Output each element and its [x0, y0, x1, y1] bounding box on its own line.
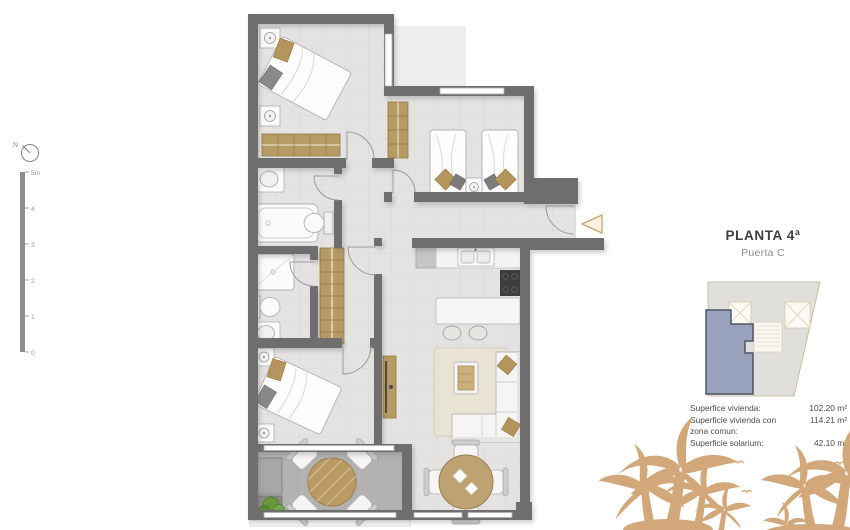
surface-areas: Superfice vivienda: 102.20 m² Superficie… — [690, 403, 847, 448]
fridge — [416, 246, 436, 268]
compass-label: N — [13, 142, 18, 149]
living-room — [434, 348, 522, 442]
terrace-cabinet — [256, 458, 282, 494]
bar-stool — [469, 326, 487, 340]
area-value: 102.20 m² — [809, 403, 847, 413]
scale-label-4: 4 — [31, 206, 35, 213]
unit-locator — [706, 282, 820, 396]
solarium-edge — [250, 520, 410, 526]
area-value: 114.21 m² — [810, 415, 847, 425]
scale-label-2: 2 — [31, 278, 35, 285]
area-label: Superficie solarium: — [690, 438, 764, 448]
scale-label-0: 0 — [31, 350, 35, 357]
toilet — [324, 212, 333, 234]
corridor-wardrobe — [320, 248, 344, 344]
tv-console — [383, 356, 396, 418]
page-subtitle: Puerta C — [741, 247, 785, 259]
scale-label-5m: 5m — [31, 170, 41, 177]
terrace-table — [308, 458, 356, 506]
scale-bar: 5m 4 3 2 1 0 — [20, 170, 41, 357]
area-label: zona comun: — [690, 426, 738, 436]
bar-stool — [443, 326, 461, 340]
area-value: 42.10 m² — [814, 438, 847, 448]
scale-label-3: 3 — [31, 242, 35, 249]
entrance-arrow-left-icon — [582, 215, 602, 233]
stair-core — [754, 322, 782, 352]
floorplan-graphic: N 5m 4 3 2 1 0 — [0, 0, 850, 530]
island — [436, 298, 520, 324]
area-label: Superficie vivienda con — [690, 415, 776, 425]
scale-label-1: 1 — [31, 314, 35, 321]
cooktop — [500, 270, 520, 296]
north-compass-icon: N — [13, 142, 39, 162]
page-title: PLANTA 4ª — [726, 228, 801, 243]
area-label: Superfice vivienda: — [690, 403, 761, 413]
apartment-plan — [248, 14, 604, 526]
floorplan-page: N 5m 4 3 2 1 0 — [0, 0, 850, 530]
dining-table — [439, 455, 493, 509]
